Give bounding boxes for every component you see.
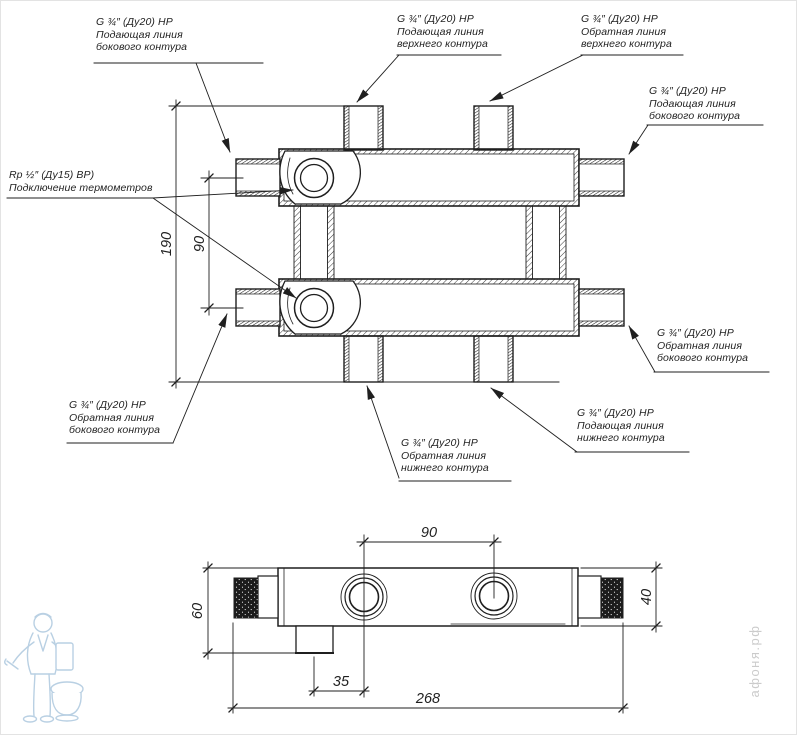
label-bottom-return-port: G ¾″ (Ду20) НР Обратная линия нижнего ко… (401, 437, 489, 475)
connecting-tube-left (294, 206, 334, 279)
port-line: Обратная линия (401, 450, 489, 463)
port-line: Обратная линия (657, 340, 748, 353)
dim-overall-length: 268 (415, 691, 440, 707)
site-watermark: афоня.рф (747, 625, 762, 698)
top-port-supply (344, 106, 383, 150)
dim-body-height: 40 (639, 589, 655, 605)
plan-body (278, 568, 578, 626)
port-spec: Rp ½″ (Ду15) ВР) (9, 169, 153, 182)
port-circuit: бокового контура (649, 110, 740, 123)
label-bottom-supply-port: G ¾″ (Ду20) НР Подающая линия нижнего ко… (577, 407, 665, 445)
mascot-watermark (5, 614, 83, 723)
label-top-supply-port: G ¾″ (Ду20) НР Подающая линия верхнего к… (397, 13, 488, 51)
plan-tube-stub (296, 626, 333, 653)
side-port-upper-right (579, 159, 624, 196)
port-spec: G ¾″ (Ду20) НР (96, 16, 187, 29)
dim-top-port-spacing: 90 (421, 525, 437, 541)
port-line: Подающая линия (397, 26, 488, 39)
plan-left-connector (234, 576, 278, 618)
port-line: Подключение термометров (9, 182, 153, 195)
side-port-lower-left (236, 289, 280, 326)
port-circuit: верхнего контура (397, 38, 488, 51)
plan-right-connector (578, 576, 623, 618)
label-top-left-port: G ¾″ (Ду20) НР Подающая линия бокового к… (96, 16, 187, 54)
dim-overall-height: 190 (159, 232, 175, 256)
label-thermometer-ports: Rp ½″ (Ду15) ВР) Подключение термометров (9, 169, 153, 194)
port-spec: G ¾″ (Ду20) НР (657, 327, 748, 340)
port-circuit: верхнего контура (581, 38, 672, 51)
dim-side-port-spacing: 90 (192, 236, 208, 252)
port-line: Обратная линия (581, 26, 672, 39)
port-spec: G ¾″ (Ду20) НР (649, 85, 740, 98)
port-line: Обратная линия (69, 412, 160, 425)
dim-tube-offset: 35 (333, 674, 350, 690)
port-spec: G ¾″ (Ду20) НР (577, 407, 665, 420)
port-circuit: бокового контура (69, 424, 160, 437)
port-line: Подающая линия (96, 29, 187, 42)
top-port-return (474, 106, 513, 150)
side-port-lower-right (579, 289, 624, 326)
thermometer-boss-lower (280, 281, 360, 334)
port-spec: G ¾″ (Ду20) НР (397, 13, 488, 26)
thermometer-boss-upper (280, 151, 360, 204)
label-right-lower-port: G ¾″ (Ду20) НР Обратная линия бокового к… (657, 327, 748, 365)
port-circuit: бокового контура (657, 352, 748, 365)
port-circuit: бокового контура (96, 41, 187, 54)
port-spec: G ¾″ (Ду20) НР (581, 13, 672, 26)
bottom-port-return (344, 336, 383, 382)
label-right-upper-port: G ¾″ (Ду20) НР Подающая линия бокового к… (649, 85, 740, 123)
dim-left-height: 60 (190, 603, 206, 619)
connecting-tube-right (526, 206, 566, 279)
side-port-upper-left (236, 159, 280, 196)
port-circuit: нижнего контура (577, 432, 665, 445)
port-circuit: нижнего контура (401, 462, 489, 475)
technical-drawing: 190 90 (0, 0, 797, 735)
port-line: Подающая линия (577, 420, 665, 433)
plan-view: 90 60 40 35 268 (190, 525, 662, 713)
port-line: Подающая линия (649, 98, 740, 111)
port-spec: G ¾″ (Ду20) НР (401, 437, 489, 450)
label-top-return-port: G ¾″ (Ду20) НР Обратная линия верхнего к… (581, 13, 672, 51)
bottom-port-supply (474, 336, 513, 382)
port-spec: G ¾″ (Ду20) НР (69, 399, 160, 412)
label-bottom-left-port: G ¾″ (Ду20) НР Обратная линия бокового к… (69, 399, 160, 437)
